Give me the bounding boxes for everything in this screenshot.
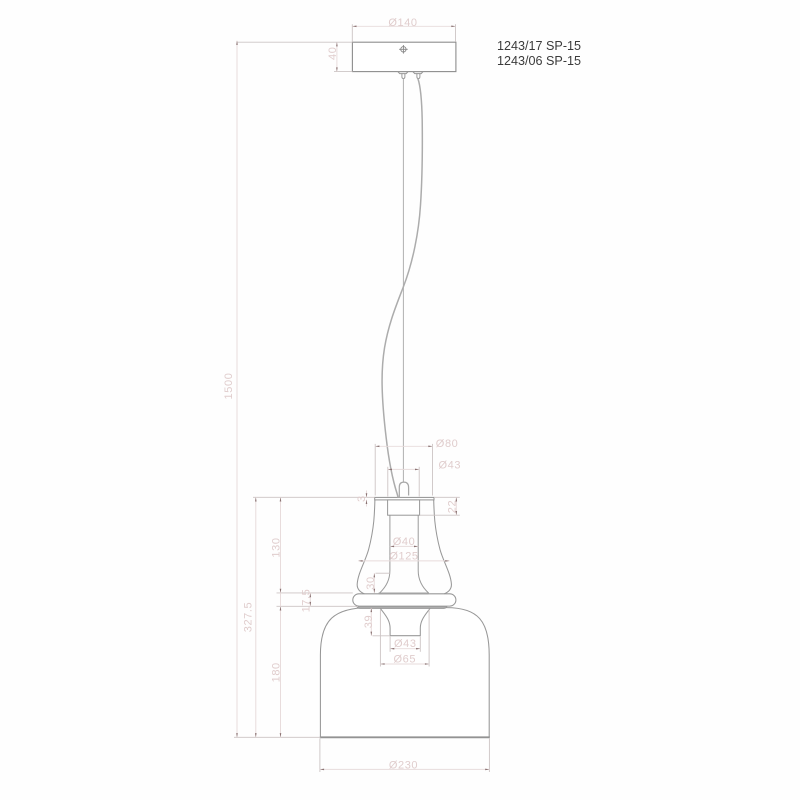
svg-text:327.5: 327.5 [243,602,255,633]
svg-text:17.5: 17.5 [301,589,313,613]
svg-text:130: 130 [271,537,283,557]
svg-text:1500: 1500 [223,373,235,400]
svg-text:1243/06 SP-15: 1243/06 SP-15 [497,54,581,68]
svg-text:3: 3 [356,495,368,502]
svg-text:1243/17 SP-15: 1243/17 SP-15 [497,39,581,53]
svg-text:39: 39 [363,615,375,628]
svg-text:30: 30 [365,576,377,589]
svg-text:Ø43: Ø43 [394,638,417,650]
svg-text:180: 180 [271,662,283,682]
svg-text:Ø80: Ø80 [436,438,459,450]
svg-text:22: 22 [447,500,459,513]
svg-text:Ø230: Ø230 [389,759,418,771]
svg-text:Ø40: Ø40 [393,536,416,548]
svg-text:Ø140: Ø140 [388,17,417,29]
svg-text:Ø65: Ø65 [394,653,417,665]
svg-text:Ø125: Ø125 [389,550,418,562]
svg-text:Ø43: Ø43 [439,460,462,472]
svg-text:40: 40 [327,47,339,60]
